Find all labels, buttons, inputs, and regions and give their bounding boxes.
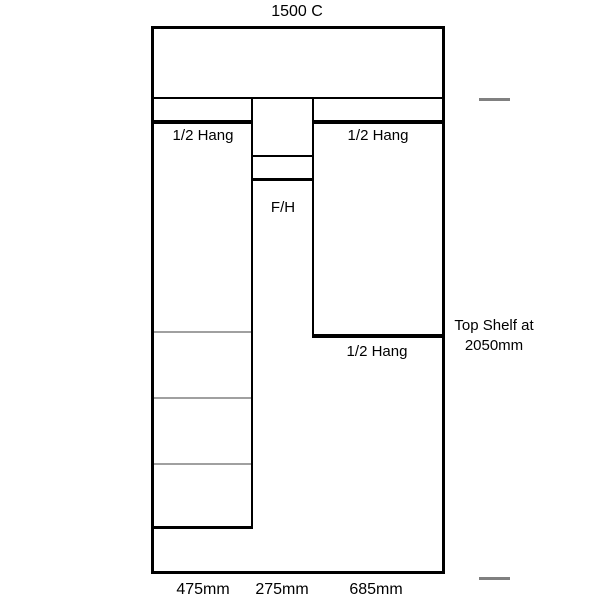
middle-width-dimension: 275mm bbox=[255, 582, 308, 598]
middle-rail-line bbox=[253, 178, 312, 181]
cabinet-title: 1500 C bbox=[271, 4, 323, 20]
divider-left-middle bbox=[251, 99, 253, 528]
top-shelf-line bbox=[154, 97, 442, 99]
left-column-bottom-line bbox=[151, 526, 253, 529]
right-mid-shelf-line bbox=[312, 334, 445, 338]
left-shelf-1 bbox=[154, 331, 251, 333]
middle-shelf-line bbox=[253, 155, 312, 157]
divider-middle-right bbox=[312, 99, 314, 336]
left-hang-rail bbox=[154, 120, 251, 124]
middle-fh-label: F/H bbox=[271, 200, 295, 215]
wardrobe-elevation-diagram: 1500 C 1/2 Hang 1/2 Hang F/H 1/2 Hang To… bbox=[0, 0, 600, 600]
reference-dash-top bbox=[479, 98, 510, 101]
cabinet-outline bbox=[151, 26, 445, 574]
left-half-hang-label: 1/2 Hang bbox=[173, 128, 234, 143]
right-top-hang-rail bbox=[313, 120, 442, 124]
left-shelf-2 bbox=[154, 397, 251, 399]
right-width-dimension: 685mm bbox=[349, 582, 402, 598]
top-shelf-note: Top Shelf at 2050mm bbox=[446, 316, 542, 356]
right-top-half-hang-label: 1/2 Hang bbox=[348, 128, 409, 143]
reference-dash-bottom bbox=[479, 577, 510, 580]
left-shelf-3 bbox=[154, 463, 251, 465]
top-shelf-note-line2: 2050mm bbox=[446, 336, 542, 356]
right-bottom-half-hang-label: 1/2 Hang bbox=[347, 344, 408, 359]
left-width-dimension: 475mm bbox=[176, 582, 229, 598]
top-shelf-note-line1: Top Shelf at bbox=[446, 316, 542, 336]
